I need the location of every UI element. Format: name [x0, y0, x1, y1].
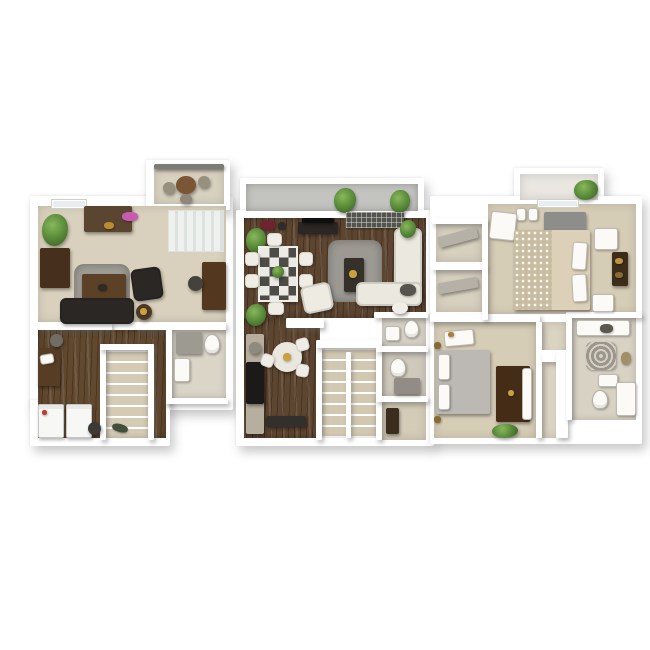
middle-wall-art-2	[278, 222, 286, 230]
left-balcony-chair-1	[163, 182, 175, 194]
middle-stair-wall-top	[316, 340, 382, 348]
middle-stair-wall-left	[316, 346, 322, 440]
left-balcony-table	[176, 176, 196, 194]
right-closet-wall-v	[482, 218, 488, 320]
middle-sofa-cushion	[400, 284, 416, 296]
left-basket	[88, 422, 101, 435]
left-lamp	[140, 308, 147, 315]
right-bed-pillow-1	[571, 242, 588, 271]
left-desk	[202, 262, 226, 310]
right-armoire-door	[522, 368, 532, 420]
middle-bathB-toilet	[390, 358, 406, 377]
middle-tv-console	[298, 222, 338, 234]
middle-bathA-sink	[385, 326, 400, 341]
right-console-gold-2	[615, 272, 623, 278]
middle-screen-door	[346, 212, 404, 228]
left-trash-can	[50, 334, 63, 347]
right-bath-wall-top	[566, 312, 642, 318]
middle-kitchen-mat	[266, 416, 306, 427]
left-stair-wall-right	[148, 344, 154, 440]
middle-dining-chair-3	[299, 252, 313, 266]
right-console-gold-1	[615, 258, 623, 264]
right-bed2-pillow-1	[438, 354, 450, 380]
left-stair-wall-left	[100, 344, 106, 440]
left-stair-wall-top	[100, 344, 154, 350]
left-wall-bath-left	[166, 330, 172, 404]
left-fireplace-gold	[104, 222, 114, 229]
right-bath-wall-left	[566, 318, 572, 420]
right-bed-quilt	[514, 230, 552, 310]
middle-stair-wall-right	[376, 346, 382, 440]
left-balcony-chair-3	[180, 194, 192, 204]
right-closet-doors-1	[516, 208, 526, 221]
middle-kitchen-sink	[249, 342, 261, 354]
right-closet-wall-1	[432, 218, 486, 224]
right-bath-shower	[586, 342, 616, 370]
left-desk-chair	[188, 276, 203, 291]
middle-wall-kitchen	[286, 318, 324, 328]
left-coffee-table-decor	[98, 284, 107, 291]
floorplan	[0, 0, 650, 650]
right-window	[538, 200, 578, 207]
middle-dining-chair-2	[245, 274, 259, 288]
left-glass-door-light	[168, 210, 224, 252]
left-toilet	[204, 334, 220, 354]
middle-bathA-toilet	[404, 320, 419, 338]
right-bath-sink-dark	[600, 324, 613, 333]
middle-tv	[302, 218, 334, 223]
left-pink-flowers	[122, 212, 138, 221]
middle-side-table	[392, 302, 408, 314]
right-hall-wall	[536, 322, 542, 438]
right-armoire-handle	[508, 390, 514, 396]
right-bed2-lamp-1	[434, 342, 441, 349]
middle-wall-art-1	[260, 220, 276, 230]
middle-wall-bathAB	[376, 346, 428, 352]
left-wall-living-hall-b	[136, 322, 226, 330]
right-nightstand-1	[594, 228, 618, 250]
middle-coffee-decor	[349, 270, 357, 278]
right-bath-sink	[598, 374, 618, 387]
right-bath-toilet	[592, 390, 608, 409]
right-bath-tub	[616, 382, 636, 416]
middle-dining-chair-5	[267, 233, 282, 246]
right-closet-wall-2	[432, 264, 486, 270]
right-bed-pillow-2	[571, 274, 587, 303]
middle-dining-chair-1	[245, 252, 259, 266]
middle-wall-bathB-bottom	[376, 396, 428, 402]
right-chest-gold	[448, 332, 454, 337]
left-armchair	[130, 266, 164, 302]
middle-breakfast-decor	[283, 353, 291, 361]
left-sofa	[60, 298, 134, 324]
left-dryer	[66, 404, 92, 438]
right-nightstand-2	[592, 294, 614, 312]
right-bed2-pillow-2	[438, 384, 450, 410]
left-wall-bath-bottom	[166, 398, 228, 404]
left-balcony-chair-2	[198, 176, 210, 188]
middle-stair-rail	[346, 352, 351, 438]
left-balcony-ledge	[154, 164, 224, 169]
left-washer-logo	[42, 410, 47, 415]
right-bed2-lamp-2	[434, 416, 441, 423]
left-window	[52, 200, 86, 208]
right-bath-art	[621, 352, 631, 365]
left-bath-sink	[174, 358, 190, 382]
left-bath-shower-mat	[176, 332, 202, 354]
middle-breakfast-chair-3	[295, 363, 310, 378]
middle-bathB-shower	[394, 378, 420, 394]
middle-dining-chair-6	[268, 302, 284, 315]
right-closet-doors-2	[528, 208, 538, 221]
left-washer	[38, 404, 64, 438]
middle-landing-cabinet	[386, 408, 399, 434]
left-media-console	[40, 248, 70, 288]
middle-cooktop	[246, 362, 264, 404]
